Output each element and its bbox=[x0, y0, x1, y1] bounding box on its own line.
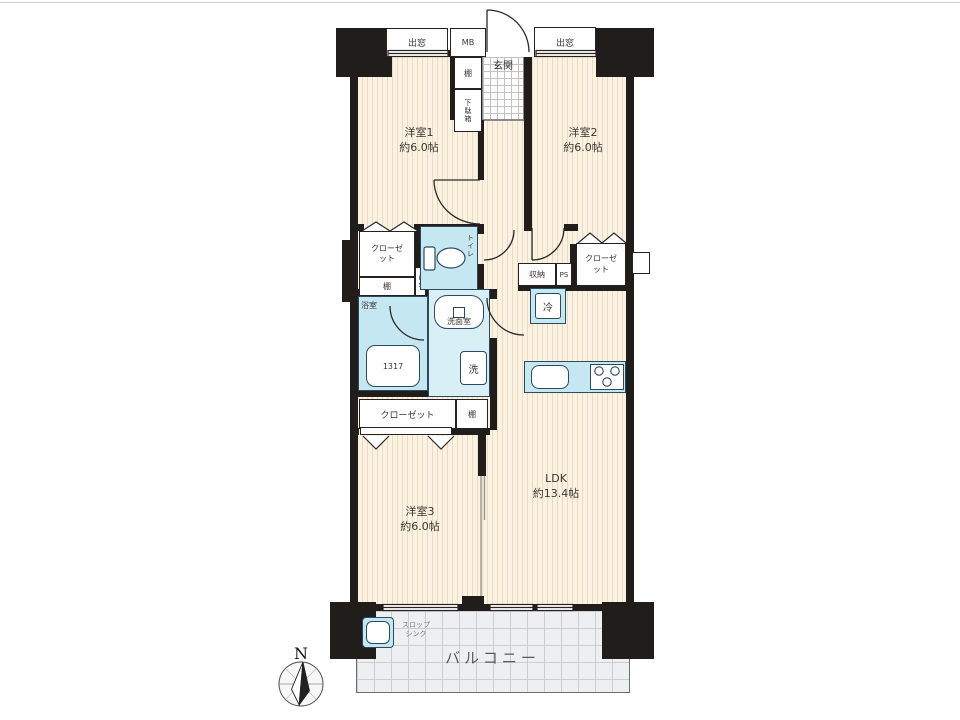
bathroom-label: 浴室 bbox=[361, 301, 401, 312]
entrance-label: 玄関 bbox=[482, 60, 524, 74]
slop-sink-basin bbox=[366, 621, 390, 644]
storage: 収納 bbox=[518, 263, 556, 286]
room3-name: 洋室3 bbox=[360, 505, 480, 520]
washroom-label: 洗面室 bbox=[430, 317, 488, 328]
top-border-line bbox=[0, 2, 960, 3]
wall-v-wash-ldk-a bbox=[490, 289, 497, 299]
toilet-label: トイレ bbox=[465, 234, 474, 258]
entry-shelf-label: 棚 bbox=[464, 68, 472, 79]
stove bbox=[590, 364, 624, 390]
storage-label: 収納 bbox=[529, 269, 545, 280]
refrigerator: 冷 bbox=[535, 293, 561, 319]
closet-left-label: クローゼット bbox=[368, 244, 406, 265]
bay-window-right: 出窓 bbox=[534, 27, 596, 57]
washing-machine-label: 洗 bbox=[469, 361, 479, 376]
washbasin-faucet bbox=[453, 307, 465, 318]
room1-name: 洋室1 bbox=[359, 126, 479, 141]
bay-window-left-label: 出窓 bbox=[408, 36, 426, 49]
wall-v-toilet-right-a bbox=[478, 226, 484, 234]
entrance-opening bbox=[484, 50, 534, 57]
pipe-space-right: PS bbox=[556, 263, 572, 286]
closet-left: クローゼット bbox=[359, 231, 415, 277]
wall-mid-a bbox=[350, 224, 364, 231]
compass-icon bbox=[279, 661, 323, 706]
bay-window-left: 出窓 bbox=[386, 28, 448, 57]
closet-right-label: クローゼット bbox=[583, 254, 619, 275]
wall-closetb-a bbox=[350, 428, 359, 435]
room1-area: 約6.0帖 bbox=[359, 141, 479, 156]
washing-machine: 洗 bbox=[460, 351, 487, 385]
closet-bottom: クローゼット bbox=[359, 399, 456, 429]
closet-bottom-door-panel bbox=[360, 427, 452, 435]
bathtub: 1317 bbox=[366, 345, 420, 387]
room1-label: 洋室1 約6.0帖 bbox=[359, 126, 479, 156]
slop-sink-label-1: スロップ bbox=[394, 621, 438, 630]
bathtub-size-label: 1317 bbox=[383, 362, 403, 371]
entrance-door-arc bbox=[487, 10, 529, 52]
pipe-space-right-label: PS bbox=[560, 271, 569, 279]
compass-north-label: N bbox=[286, 643, 316, 665]
room3-label: 洋室3 約6.0帖 bbox=[360, 505, 480, 535]
wall-left bbox=[350, 55, 358, 606]
balcony-label: バルコニー bbox=[400, 648, 585, 668]
floor-plan: 出窓 MB 出窓 棚 下駄箱 クローゼット 棚 収納 PS クローゼット PS … bbox=[0, 0, 960, 720]
room3-area: 約6.0帖 bbox=[360, 520, 480, 535]
right-wall-box bbox=[632, 252, 650, 274]
closet-bottom-label: クローゼット bbox=[380, 408, 434, 421]
ldk-name: LDK bbox=[496, 472, 616, 487]
shelf-mid: 棚 bbox=[359, 277, 415, 296]
room2-area: 約6.0帖 bbox=[523, 141, 643, 156]
wall-v-room3-ldk bbox=[478, 428, 486, 476]
wall-mid-d bbox=[564, 224, 578, 231]
kitchen-sink bbox=[531, 365, 569, 389]
wall-v-wash-ldk-b bbox=[490, 338, 497, 430]
slop-sink-label-2: シンク bbox=[394, 630, 438, 639]
room2-label: 洋室2 約6.0帖 bbox=[523, 126, 643, 156]
refrigerator-label: 冷 bbox=[543, 299, 553, 314]
shelf-bottom-label: 棚 bbox=[468, 409, 476, 420]
slop-sink-label: スロップ シンク bbox=[394, 621, 438, 639]
shoe-cabinet-label: 下駄箱 bbox=[463, 99, 473, 123]
ldk-label: LDK 約13.4帖 bbox=[496, 472, 616, 502]
entrance-step bbox=[482, 119, 524, 121]
meter-box: MB bbox=[450, 28, 486, 57]
closet-right: クローゼット bbox=[576, 243, 626, 286]
bay-window-right-label: 出窓 bbox=[556, 36, 574, 49]
shelf-mid-label: 棚 bbox=[383, 281, 391, 292]
wall-left-bump bbox=[342, 240, 350, 302]
room2-name: 洋室2 bbox=[523, 126, 643, 141]
wall-bottom bbox=[350, 604, 634, 611]
entry-shelf: 棚 bbox=[454, 57, 482, 89]
wall-stub-bottom bbox=[462, 596, 484, 604]
ldk-area: 約13.4帖 bbox=[496, 487, 616, 502]
meter-box-label: MB bbox=[462, 38, 474, 47]
shelf-bottom: 棚 bbox=[456, 399, 488, 429]
